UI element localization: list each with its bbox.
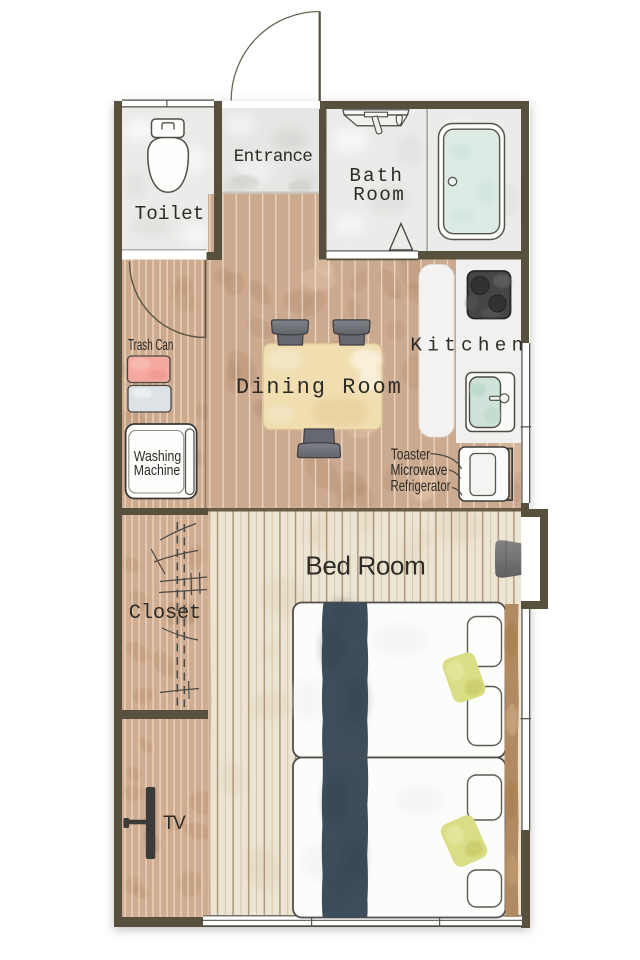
svg-text:Toilet: Toilet: [135, 203, 205, 225]
svg-text:Dining Room: Dining Room: [236, 375, 403, 400]
svg-text:Kitchen: Kitchen: [410, 334, 528, 356]
svg-text:Machine: Machine: [134, 462, 181, 478]
svg-text:Entrance: Entrance: [234, 147, 312, 167]
svg-text:Bed Room: Bed Room: [305, 551, 425, 581]
svg-text:Trash Can: Trash Can: [128, 336, 173, 354]
svg-text:Room: Room: [353, 184, 405, 206]
svg-text:Closet: Closet: [129, 602, 201, 625]
svg-text:TV: TV: [163, 813, 186, 834]
svg-text:Refrigerator: Refrigerator: [391, 476, 451, 494]
